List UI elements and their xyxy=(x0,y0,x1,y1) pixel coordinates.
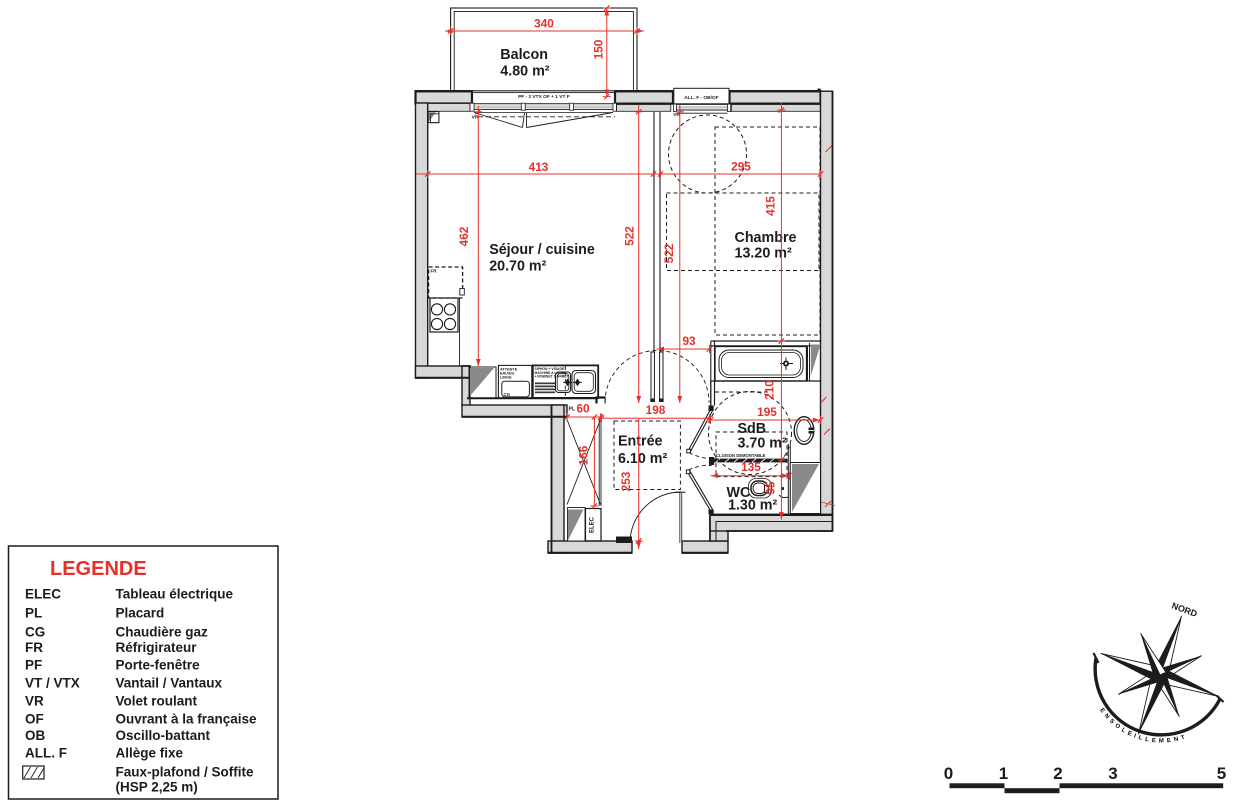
svg-text:Oscillo-battant: Oscillo-battant xyxy=(116,728,211,743)
svg-text:ELEC: ELEC xyxy=(590,516,596,533)
svg-text:CG: CG xyxy=(25,625,45,640)
svg-text:Balcon: Balcon xyxy=(500,47,548,63)
svg-text:ALL. F: ALL. F xyxy=(25,746,67,761)
svg-text:+ ROBINET D ARRET: + ROBINET D ARRET xyxy=(535,375,570,379)
svg-text:ELEC: ELEC xyxy=(25,587,61,602)
svg-text:PF - 2 VTX OF + 1 VT F: PF - 2 VTX OF + 1 VT F xyxy=(518,94,570,100)
svg-text:OB: OB xyxy=(25,728,46,743)
svg-text:Tableau électrique: Tableau électrique xyxy=(116,587,234,602)
svg-text:95: 95 xyxy=(764,481,778,495)
svg-text:FR: FR xyxy=(431,269,438,274)
svg-text:VR: VR xyxy=(25,694,44,709)
svg-text:OF: OF xyxy=(25,712,44,727)
svg-text:Volet roulant: Volet roulant xyxy=(116,694,198,709)
svg-text:415: 415 xyxy=(764,196,778,216)
svg-text:413: 413 xyxy=(529,160,549,174)
svg-text:93: 93 xyxy=(682,334,696,348)
svg-text:Placard: Placard xyxy=(116,606,165,621)
svg-text:6.10 m²: 6.10 m² xyxy=(618,451,668,467)
svg-text:Réfrigirateur: Réfrigirateur xyxy=(116,640,198,655)
svg-text:ALL. F - OB/OF: ALL. F - OB/OF xyxy=(684,95,718,101)
svg-text:LEGENDE: LEGENDE xyxy=(50,558,147,580)
svg-text:13.20 m²: 13.20 m² xyxy=(735,246,792,262)
svg-text:Chambre: Chambre xyxy=(735,230,797,246)
svg-text:1.30 m²: 1.30 m² xyxy=(728,498,778,514)
svg-text:Ouvrant à la française: Ouvrant à la française xyxy=(116,712,258,727)
svg-text:198: 198 xyxy=(646,403,666,417)
svg-text:295: 295 xyxy=(731,160,751,174)
svg-text:3: 3 xyxy=(1108,764,1117,783)
svg-text:135: 135 xyxy=(741,460,761,474)
svg-text:4.80 m²: 4.80 m² xyxy=(500,64,550,80)
svg-text:Porte-fenêtre: Porte-fenêtre xyxy=(116,658,201,673)
svg-text:FR: FR xyxy=(25,640,43,655)
svg-text:Chaudière gaz: Chaudière gaz xyxy=(116,625,209,640)
svg-text:Faux-plafond / Soffite: Faux-plafond / Soffite xyxy=(116,765,254,780)
svg-text:LINGE: LINGE xyxy=(500,376,512,380)
svg-text:150: 150 xyxy=(592,39,606,59)
svg-text:20.70 m²: 20.70 m² xyxy=(489,259,546,275)
svg-text:3.70 m²: 3.70 m² xyxy=(738,436,788,452)
svg-text:2: 2 xyxy=(1053,764,1062,783)
svg-text:1: 1 xyxy=(999,764,1008,783)
svg-text:210: 210 xyxy=(763,380,777,400)
svg-text:253: 253 xyxy=(619,471,633,491)
svg-text:PL: PL xyxy=(569,407,575,413)
svg-text:Entrée: Entrée xyxy=(618,434,663,450)
svg-text:Séjour / cuisine: Séjour / cuisine xyxy=(489,242,595,258)
svg-text:462: 462 xyxy=(457,226,471,246)
svg-text:522: 522 xyxy=(623,226,637,246)
svg-text:VR: VR xyxy=(472,114,479,120)
svg-text:VT / VTX: VT / VTX xyxy=(25,676,80,691)
svg-text:CLOISON DEMONTABLE: CLOISON DEMONTABLE xyxy=(716,453,766,458)
svg-text:166: 166 xyxy=(577,445,591,465)
svg-text:PF: PF xyxy=(25,658,42,673)
svg-text:Vantail / Vantaux: Vantail / Vantaux xyxy=(116,676,223,691)
svg-text:(HSP 2,25 m): (HSP 2,25 m) xyxy=(116,780,198,795)
svg-text:5: 5 xyxy=(1217,764,1226,783)
svg-text:522: 522 xyxy=(662,243,676,263)
svg-text:PL: PL xyxy=(25,606,42,621)
svg-text:CG: CG xyxy=(504,392,511,397)
svg-text:60: 60 xyxy=(576,402,590,416)
svg-text:195: 195 xyxy=(757,405,777,419)
svg-text:340: 340 xyxy=(534,17,554,31)
svg-text:0: 0 xyxy=(944,764,953,783)
svg-text:Allège fixe: Allège fixe xyxy=(116,746,184,761)
